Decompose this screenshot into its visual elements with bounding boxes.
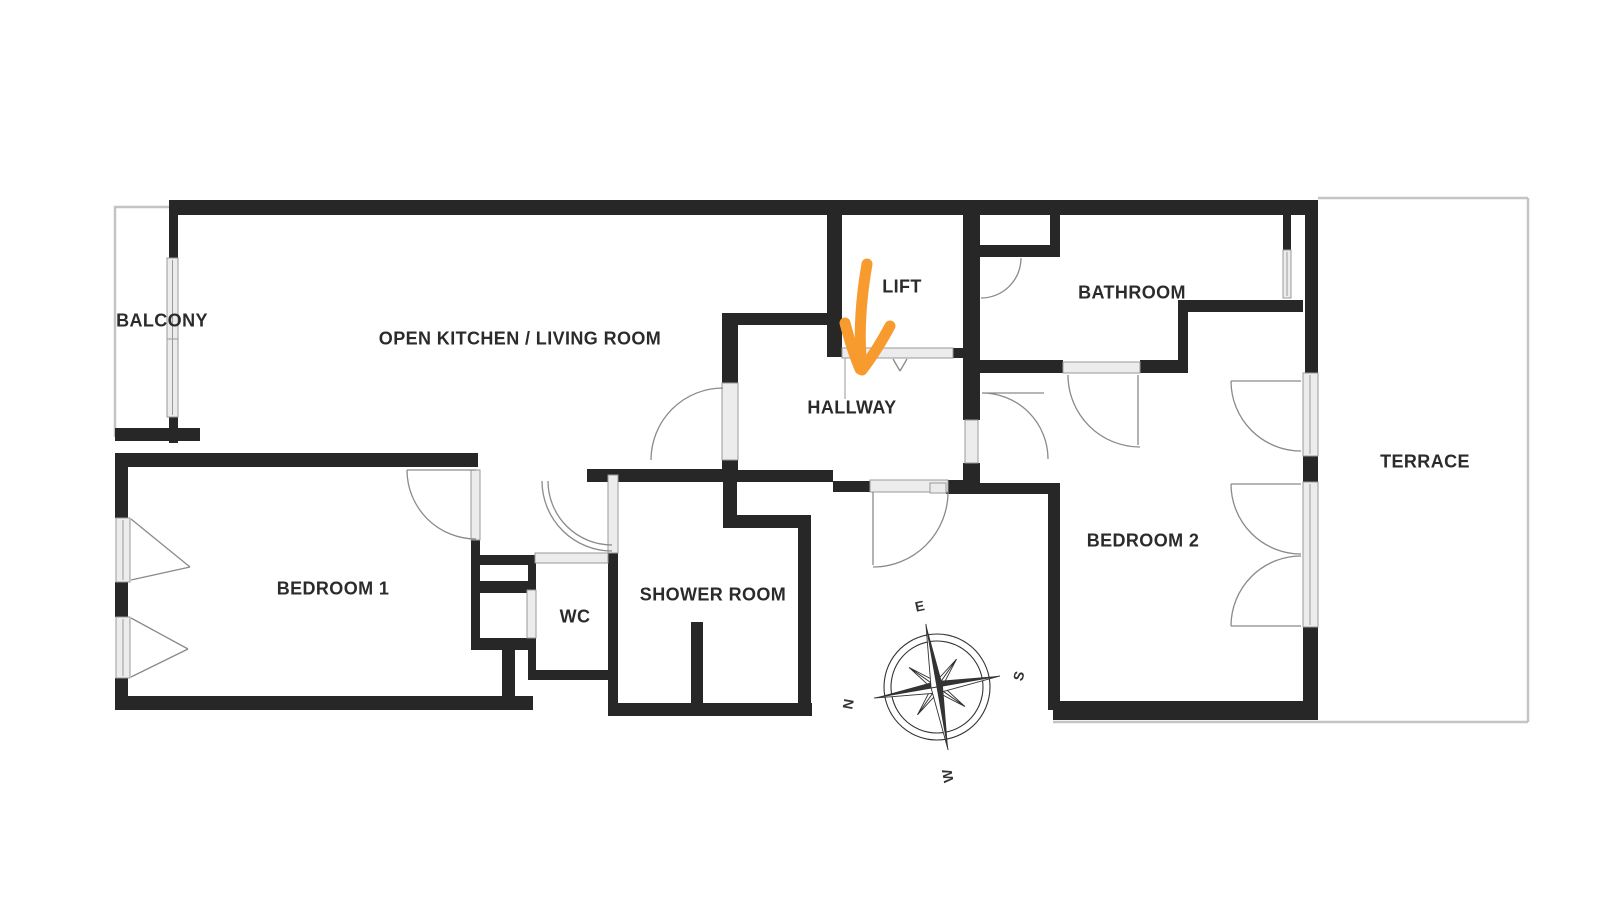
room-label-bedroom1: BEDROOM 1 bbox=[277, 579, 390, 600]
room-label-lift: LIFT bbox=[882, 277, 922, 298]
room-label-hallway: HALLWAY bbox=[807, 398, 896, 419]
living-hallway-door-swing bbox=[651, 388, 723, 460]
room-label-shower: SHOWER ROOM bbox=[640, 585, 786, 606]
room-label-bathroom: BATHROOM bbox=[1078, 283, 1186, 304]
hallway-east-door-swing bbox=[982, 393, 1048, 459]
room-label-wc: WC bbox=[560, 607, 591, 628]
room-label-kitchen-living: OPEN KITCHEN / LIVING ROOM bbox=[379, 329, 661, 350]
room-label-balcony: BALCONY bbox=[116, 311, 208, 332]
corridor-south-sill bbox=[930, 483, 946, 493]
living-hallway-door-sill bbox=[722, 383, 738, 460]
entry-door-swing bbox=[873, 492, 948, 567]
bathroom-door-sill bbox=[1063, 362, 1140, 373]
bedroom1-window-casement-upper bbox=[131, 519, 190, 580]
french-door-bottom-swing bbox=[1231, 556, 1301, 626]
french-door-top-swing bbox=[1231, 484, 1301, 554]
bedroom1-door-sill bbox=[471, 470, 480, 540]
floorplan-page: BALCONY OPEN KITCHEN / LIVING ROOM LIFT … bbox=[0, 0, 1600, 900]
compass-rose bbox=[863, 613, 1011, 761]
room-label-terrace: TERRACE bbox=[1380, 452, 1470, 473]
bathroom-door-swing bbox=[1068, 375, 1140, 447]
bathroom-shaft-swing bbox=[981, 258, 1021, 298]
compass-star bbox=[863, 613, 1011, 761]
floorplan-drawing bbox=[0, 0, 1600, 900]
lift-door-mark bbox=[893, 359, 907, 371]
bedroom1-door-swing bbox=[407, 470, 476, 539]
duct-panel bbox=[527, 590, 536, 638]
bedroom1-window-casement-lower bbox=[131, 618, 188, 677]
compass-label-west: W bbox=[939, 768, 957, 784]
room-label-bedroom2: BEDROOM 2 bbox=[1087, 531, 1200, 552]
wc-threshold bbox=[535, 553, 608, 563]
shower-door-swing bbox=[542, 481, 612, 551]
hallway-east-door-sill bbox=[965, 420, 978, 463]
doors-layer bbox=[131, 258, 1301, 677]
shower-door-sill bbox=[608, 475, 618, 553]
terrace-door-swing bbox=[1231, 381, 1301, 451]
walls-layer bbox=[115, 200, 1318, 720]
